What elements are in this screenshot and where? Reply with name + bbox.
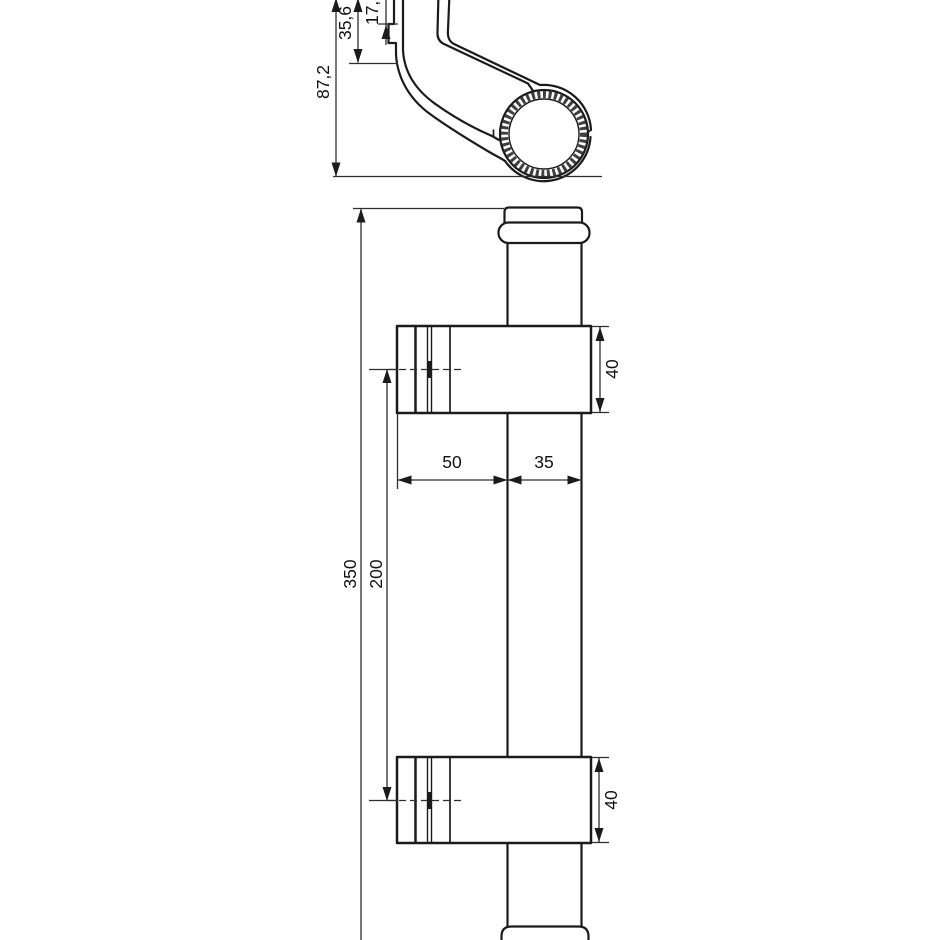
- upper-bracket: [388, 326, 591, 413]
- tube-ring-knurl-band: [505, 95, 584, 174]
- dimension-40-lower: 40: [592, 758, 621, 843]
- dim-35-6-arrow-bottom: [354, 49, 363, 63]
- dim-200-arrow-top: [383, 369, 392, 383]
- dim-40u-arrow-bottom: [596, 398, 605, 412]
- dim-200-arrow-bottom: [383, 787, 392, 801]
- dim-40u-arrow-top: [596, 327, 605, 341]
- section-view: 87,2 35,6 17,3: [313, 0, 602, 181]
- tube-top-cap-collar: [499, 223, 590, 244]
- dim-35-arrow-left: [508, 476, 522, 485]
- tube-section-ring: [500, 90, 588, 178]
- dimension-17-3: 17,3: [362, 0, 398, 45]
- tube-top-cap: [499, 208, 590, 244]
- dim-350-arrow-top: [357, 209, 366, 223]
- dimension-40-upper: 40: [592, 327, 622, 413]
- dim-200-label: 200: [366, 559, 386, 588]
- handle-arm-inner-line: [437, 0, 532, 90]
- technical-drawing-canvas: 87,2 35,6 17,3: [0, 0, 940, 940]
- handle-profile-outer-wall: [389, 0, 506, 161]
- lower-bracket: [388, 757, 591, 843]
- tube-ring-outer-circle: [500, 90, 588, 178]
- dim-40u-label: 40: [602, 359, 622, 379]
- dim-40l-arrow-top: [595, 758, 604, 772]
- dim-50-label: 50: [442, 452, 462, 472]
- dim-40l-arrow-bottom: [595, 828, 604, 842]
- tube-bottom-cap-collar: [502, 927, 589, 940]
- dim-35-6-label: 35,6: [335, 6, 355, 40]
- dim-87-2-arrow-bottom: [332, 163, 341, 177]
- front-view: 350 200 50 35 40: [340, 208, 622, 940]
- handle-profile-inner-wall: [403, 0, 499, 140]
- dim-50-arrow-right: [494, 476, 508, 485]
- dim-87-2-label: 87,2: [313, 65, 333, 99]
- dimension-50-35: 50 35: [398, 414, 582, 489]
- dim-50-arrow-left: [398, 476, 412, 485]
- dim-35-label: 35: [534, 452, 553, 472]
- dim-40l-label: 40: [601, 790, 621, 810]
- dim-350-label: 350: [340, 559, 360, 588]
- dimension-200: 200: [366, 369, 397, 801]
- dim-17-3-label: 17,3: [362, 0, 382, 25]
- tube-ring-inner-circle: [509, 99, 579, 169]
- dim-35-arrow-right: [568, 476, 582, 485]
